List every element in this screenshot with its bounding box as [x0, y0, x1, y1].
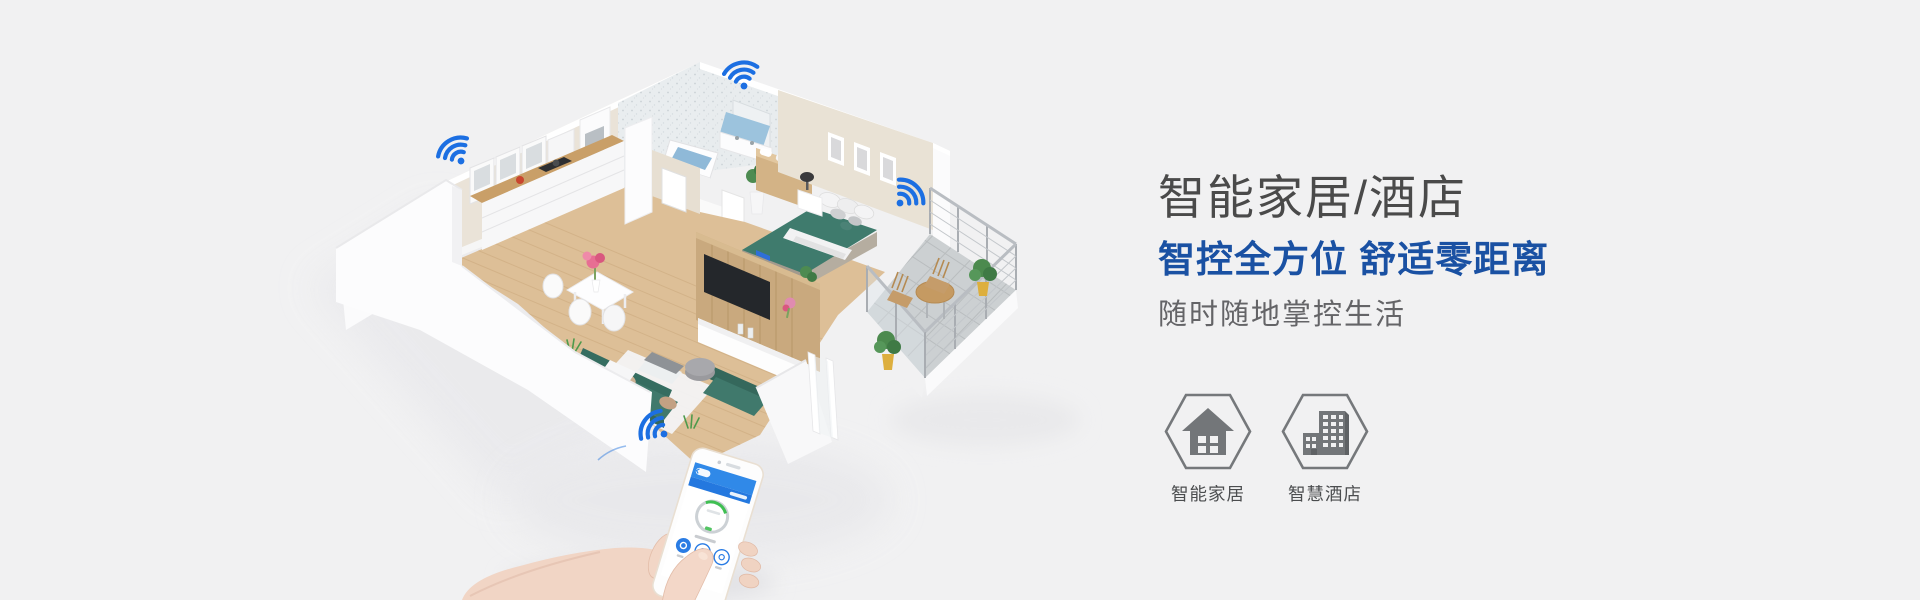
feature-list: 智能家居 智慧酒店 [1163, 391, 1370, 506]
feature-smart-home[interactable]: 智能家居 [1163, 391, 1253, 506]
hero-subtitle: 随时随地掌控生活 [1158, 298, 1718, 333]
feature-smart-hotel-label: 智慧酒店 [1288, 481, 1362, 506]
hero-copy: 智能家居/酒店 智控全方位 舒适零距离 随时随地掌控生活 [1158, 170, 1718, 333]
hero-title: 智能家居/酒店 [1158, 170, 1718, 225]
wifi-icon-kitchen [434, 132, 477, 173]
house-icon [1164, 391, 1252, 472]
hero-headline: 智控全方位 舒适零距离 [1158, 239, 1718, 282]
feature-smart-home-label: 智能家居 [1171, 481, 1245, 506]
buildings-icon [1281, 391, 1369, 472]
kitchen-column [625, 117, 652, 224]
hero-banner: 智能家居/酒店 智控全方位 舒适零距离 随时随地掌控生活 智能家居 [0, 0, 1920, 600]
feature-smart-hotel[interactable]: 智慧酒店 [1280, 391, 1370, 506]
